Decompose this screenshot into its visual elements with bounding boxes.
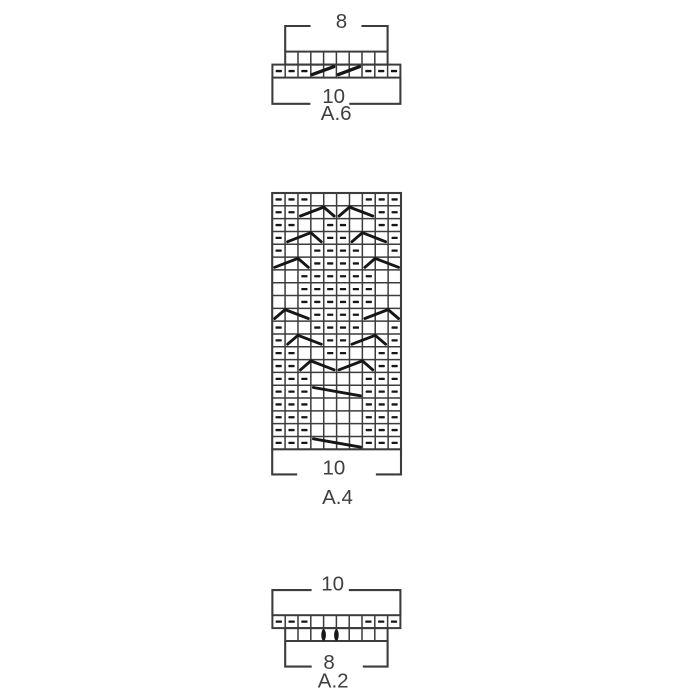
svg-text:8: 8: [336, 10, 347, 33]
svg-text:A.4: A.4: [322, 486, 353, 509]
svg-text:10: 10: [321, 573, 344, 596]
svg-text:A.2: A.2: [318, 669, 349, 690]
svg-text:A.6: A.6: [321, 102, 352, 125]
svg-text:10: 10: [322, 457, 345, 480]
